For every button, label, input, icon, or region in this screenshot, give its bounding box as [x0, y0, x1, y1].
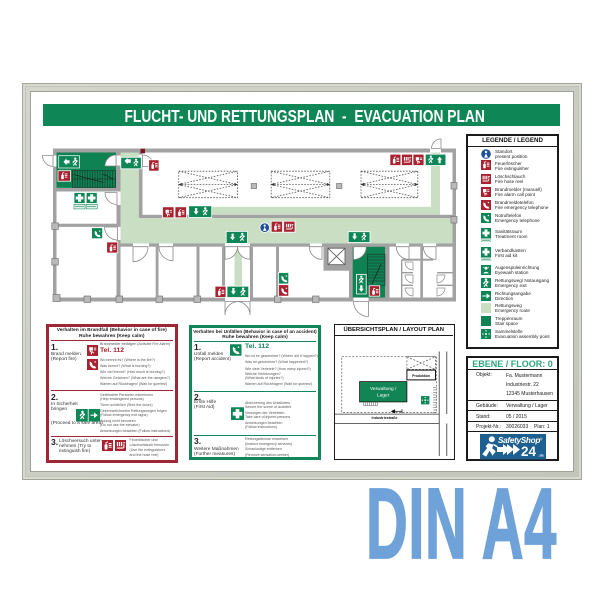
svg-text:Lager: Lager	[377, 393, 390, 399]
svg-text:Industriestraße: Industriestraße	[372, 416, 398, 420]
svg-text:24: 24	[521, 444, 537, 459]
svg-text:.de: .de	[539, 454, 544, 458]
svg-text:Verwaltung /: Verwaltung /	[370, 386, 397, 392]
svg-text:Produktion: Produktion	[412, 374, 430, 378]
